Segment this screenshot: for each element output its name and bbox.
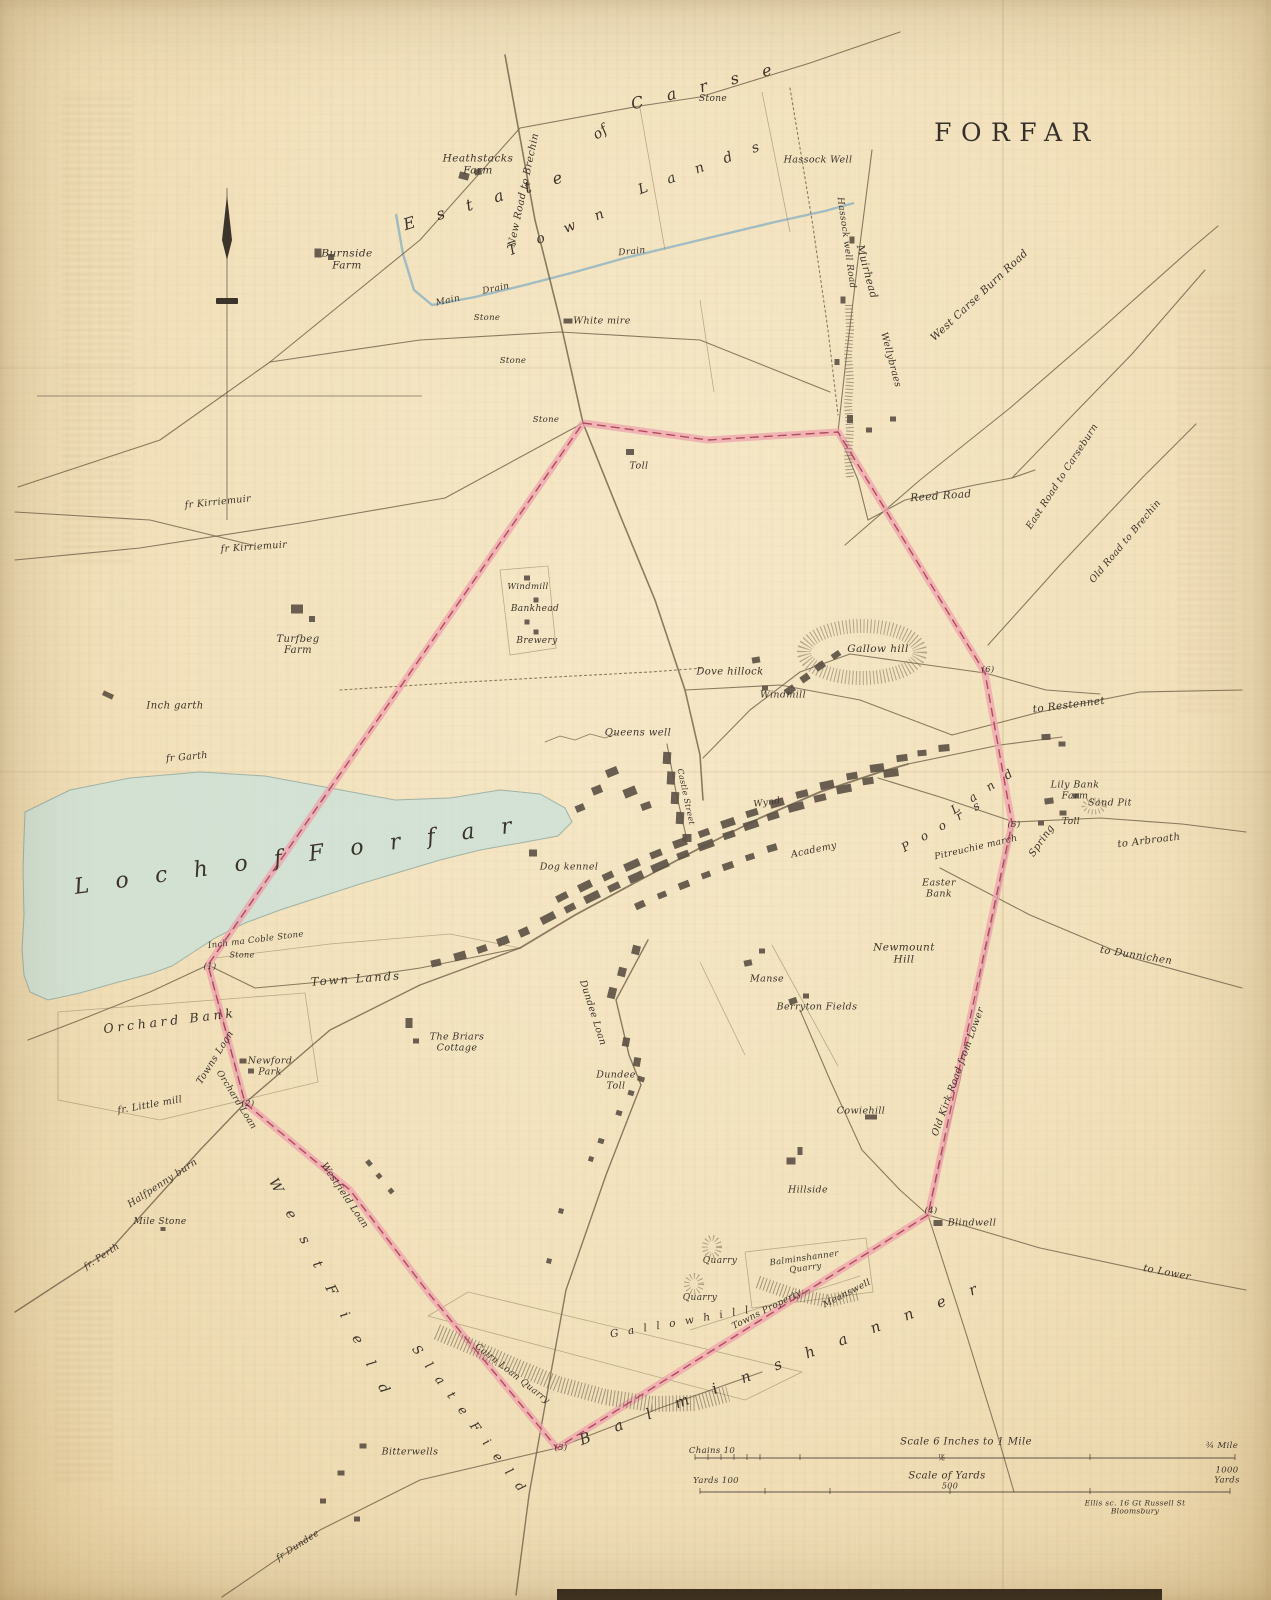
municipal-boundary-dash [208, 423, 1012, 1448]
building [743, 959, 752, 967]
road [845, 226, 1218, 545]
building [430, 958, 441, 967]
building [678, 880, 691, 890]
building [743, 819, 760, 831]
road [928, 1215, 1014, 1492]
building [615, 1110, 622, 1117]
building [622, 785, 637, 798]
building [518, 926, 530, 937]
building [745, 808, 759, 818]
building [161, 1227, 166, 1231]
building [631, 945, 641, 956]
building [787, 1158, 796, 1165]
building [605, 766, 619, 778]
building [934, 1220, 943, 1226]
building [769, 797, 785, 809]
road [1014, 818, 1246, 832]
building [698, 828, 711, 838]
building [575, 803, 586, 813]
field-boundary [428, 1292, 802, 1400]
building [866, 428, 872, 433]
building [525, 620, 530, 625]
building [799, 673, 810, 684]
building [558, 1208, 564, 1214]
hill-hachure [705, 1238, 719, 1256]
road [583, 423, 703, 800]
field-boundary [772, 945, 838, 1066]
building [360, 1444, 367, 1449]
building [657, 891, 668, 900]
building [597, 1138, 604, 1145]
building [534, 630, 539, 635]
building [640, 801, 652, 811]
building [634, 900, 646, 910]
building [623, 858, 641, 872]
main-drain-stream [396, 203, 854, 305]
building [762, 686, 768, 691]
road [15, 423, 583, 560]
building [607, 987, 617, 1000]
road [928, 1215, 1246, 1290]
building [938, 744, 950, 752]
building [788, 997, 797, 1005]
building [617, 967, 627, 978]
building [1059, 742, 1066, 747]
building [309, 616, 315, 622]
building [745, 853, 755, 861]
building [564, 319, 573, 324]
building [338, 1471, 345, 1476]
road [703, 654, 850, 758]
sheet-edge-mark [557, 1589, 1162, 1600]
building [622, 1037, 630, 1047]
field-boundary [700, 962, 745, 1055]
map-sheet: FORFAR FORFARHeathstacks FarmBurnside Fa… [0, 0, 1271, 1600]
building [841, 297, 846, 304]
building [555, 891, 569, 903]
building [766, 811, 780, 821]
road [18, 32, 900, 487]
building [890, 417, 896, 422]
footpath [790, 88, 838, 415]
road [208, 948, 520, 988]
building [406, 1018, 413, 1028]
building [588, 1156, 594, 1162]
building [328, 254, 334, 260]
field-boundary [58, 993, 318, 1120]
building [676, 812, 685, 824]
building [865, 1115, 877, 1120]
building [649, 849, 663, 860]
compass-bar [216, 298, 238, 304]
building [683, 834, 692, 842]
map-canvas [0, 0, 1271, 1600]
building [602, 871, 615, 882]
building [1044, 797, 1054, 804]
building [850, 237, 855, 244]
building [722, 861, 735, 871]
building [720, 817, 736, 829]
road [685, 685, 952, 735]
building [375, 1172, 382, 1179]
building [476, 944, 488, 954]
building [529, 850, 537, 857]
building [365, 1159, 373, 1167]
building [637, 1076, 645, 1083]
building [896, 754, 908, 762]
building [766, 843, 778, 852]
road [940, 868, 1242, 988]
footpath [340, 668, 703, 690]
loch-of-forfar-water [22, 772, 572, 1000]
field-boundary [762, 92, 790, 232]
building [1041, 734, 1050, 740]
building [591, 784, 603, 795]
building [663, 752, 672, 764]
road [838, 150, 872, 432]
field-boundary [690, 1276, 860, 1330]
building [633, 1057, 641, 1067]
building [626, 449, 634, 455]
building [240, 1059, 247, 1064]
building [722, 830, 736, 841]
field-boundary [700, 300, 714, 392]
building [534, 598, 539, 603]
building [798, 1147, 803, 1155]
road [800, 1010, 928, 1215]
road [545, 733, 618, 742]
building [387, 1187, 394, 1194]
building [564, 902, 577, 913]
road [270, 332, 830, 392]
building [248, 1069, 254, 1074]
building [847, 415, 853, 423]
building [752, 656, 761, 663]
hill-hachure [804, 626, 920, 678]
building [803, 994, 809, 999]
hill-hachure [687, 1276, 701, 1292]
building [671, 792, 680, 804]
building [831, 650, 842, 660]
building [627, 1090, 634, 1097]
municipal-boundary-band [208, 423, 1012, 1448]
building [354, 1517, 360, 1522]
field-boundary [215, 934, 520, 958]
building [650, 859, 670, 873]
building [540, 911, 557, 925]
hill-hachure [1084, 800, 1104, 812]
building [315, 249, 322, 258]
building [453, 951, 467, 962]
road [15, 512, 252, 545]
building [474, 168, 482, 175]
road [878, 778, 1014, 822]
building [676, 850, 690, 861]
building [524, 576, 530, 581]
building [413, 1039, 419, 1044]
road [868, 470, 1035, 520]
building [320, 1499, 326, 1504]
road [1012, 270, 1205, 478]
building [102, 690, 114, 699]
road [222, 1372, 762, 1597]
building [917, 750, 926, 757]
building [835, 359, 840, 365]
road [908, 737, 1062, 764]
building [577, 879, 593, 892]
building [701, 871, 712, 880]
building [1060, 811, 1067, 816]
building [759, 949, 765, 954]
building [667, 771, 676, 784]
building [546, 1258, 552, 1264]
building [1038, 821, 1044, 826]
building [291, 605, 303, 614]
building [458, 171, 469, 180]
road [988, 424, 1196, 645]
compass-north-arrow-icon [222, 195, 232, 260]
building [697, 839, 715, 852]
building [1073, 794, 1079, 799]
field-boundary [640, 108, 665, 250]
road [15, 948, 520, 1312]
building [496, 935, 510, 947]
